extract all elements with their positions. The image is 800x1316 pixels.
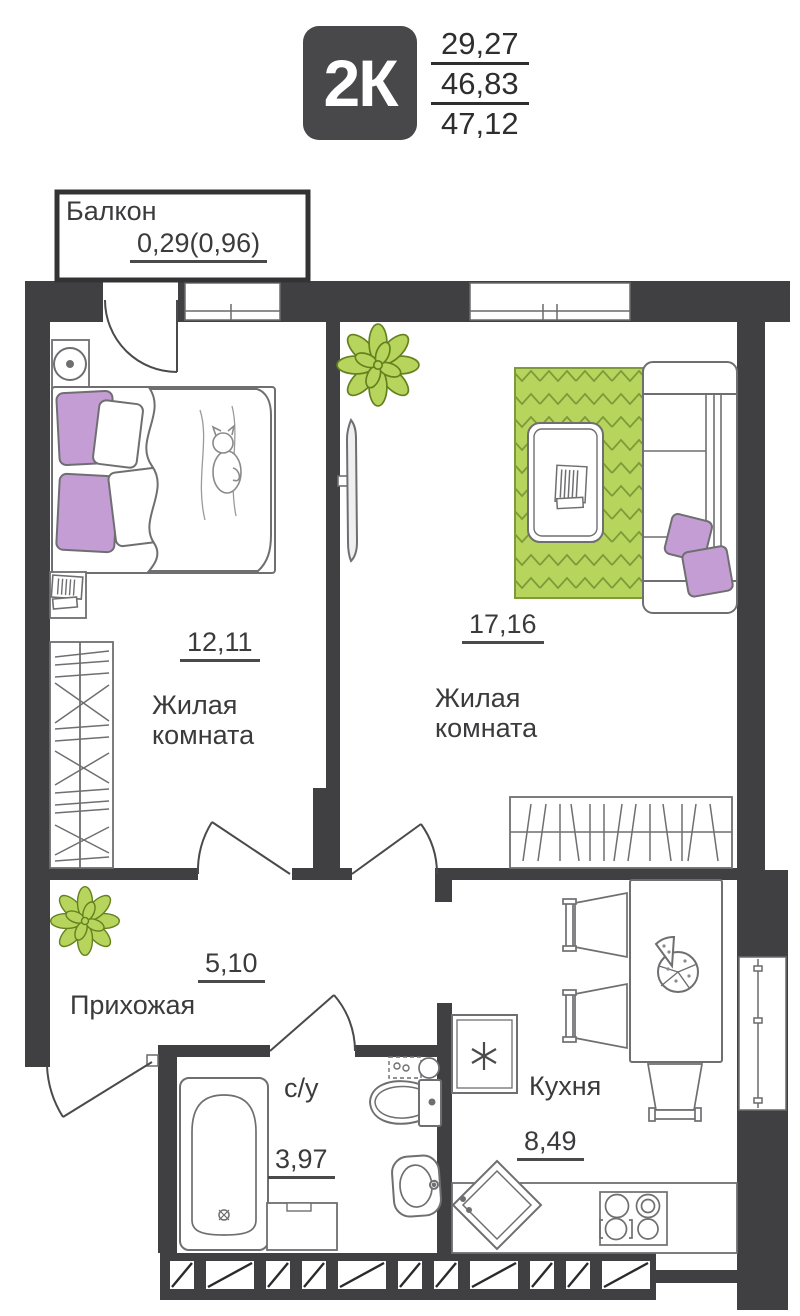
kitchen-window [739,957,786,1110]
total-area-value: 47,12 [431,106,529,141]
kitchen-door [352,824,437,874]
bathroom-area-label: 3,97 [268,1144,335,1179]
balcony-label: Балкон [66,196,157,226]
area-summary: 29,27 46,83 47,12 [431,26,529,141]
hallway-label: Прихожая [70,990,195,1020]
bedroom-window [185,283,280,320]
apartment-type-label: 2К [324,45,397,121]
blanket [146,389,271,571]
tv [338,420,357,561]
floor-plan: Балкон 0,29(0,96) 12,11 Жилая комната 17… [0,180,800,1316]
burner [606,1219,627,1240]
floor-plan-svg [0,180,800,1316]
sofa-pillow-2 [682,545,734,597]
burner [606,1195,629,1218]
bedroom-door [198,822,290,874]
nightstand-lamp [52,340,89,388]
plan-header: 2К 29,27 46,83 47,12 [303,26,529,141]
chair-3 [648,1064,702,1121]
living-area-value: 29,27 [431,26,529,61]
kitchen-furniture [452,880,737,1253]
balcony-area-label: 0,29(0,96) [130,228,267,263]
bedroom-furniture [50,340,275,868]
wardrobe-bedroom [50,642,113,868]
entrance-door [47,1062,152,1117]
wardrobe-living [510,797,732,868]
coffee-table [528,423,603,542]
bath-cabinet [267,1203,337,1250]
living-furniture [337,324,737,868]
toilet [370,1057,441,1126]
apartment-type-badge: 2К [303,26,417,140]
balcony-door-opening [103,281,178,322]
bathroom-label: с/у [284,1073,319,1103]
living-area-label: 17,16 [462,609,544,644]
bath-sink [391,1154,442,1217]
nightstand-radio [50,572,86,618]
fridge [452,1015,517,1093]
plant-living [337,324,419,406]
plant-hallway [51,887,120,956]
sofa [643,362,737,613]
area-divider [431,62,529,65]
bed [52,387,275,573]
floorplan-page: 2К 29,27 46,83 47,12 [0,0,800,1316]
kitchen-table [630,880,722,1062]
kitchen-area-label: 8,49 [517,1126,584,1161]
kitchen-label: Кухня [529,1071,601,1101]
bathroom-door [270,995,355,1051]
stove [600,1192,667,1245]
burner [638,1219,658,1239]
apartment-area-value: 46,83 [431,66,529,101]
bedroom-area-label: 12,11 [180,627,260,662]
living-window [470,283,630,320]
book [555,465,587,510]
living-label: Жилая комната [435,683,587,743]
pillow-white-1 [92,400,143,469]
bathtub [180,1078,268,1250]
bedroom-label: Жилая комната [152,690,304,750]
chair-2 [563,984,627,1048]
chair-1 [563,893,627,957]
area-divider [431,102,529,105]
hatch-band [170,1261,650,1289]
hallway-area-label: 5,10 [198,948,265,983]
